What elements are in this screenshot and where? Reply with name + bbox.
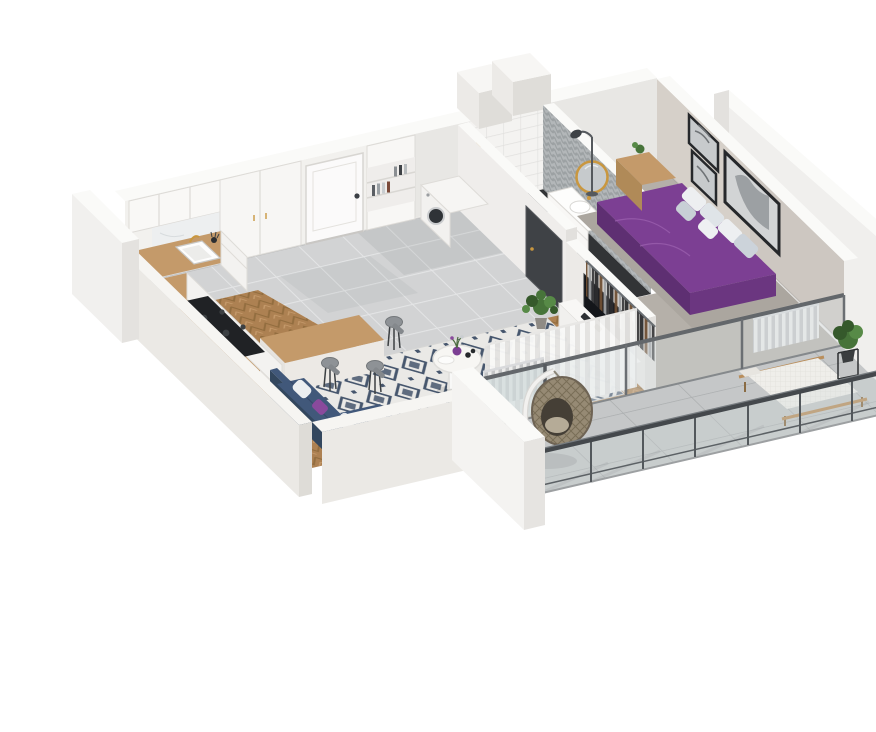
washer-knob — [426, 193, 429, 196]
scene — [72, 53, 876, 530]
table-tray — [438, 356, 454, 364]
divider-side — [524, 437, 545, 530]
west-wall-corner — [299, 422, 312, 497]
stub-side — [122, 239, 139, 343]
vase-flower-bud — [450, 336, 454, 340]
floorplan-svg: 3D isometric cutaway floor plan render o… — [40, 16, 876, 716]
burner — [219, 309, 224, 314]
egg-chair-cushion — [545, 417, 569, 433]
bookshelf-cabinet — [367, 135, 415, 230]
plant-pot — [535, 318, 547, 329]
plant-leaves — [526, 295, 538, 307]
entrance-door — [306, 153, 363, 244]
table-cup — [465, 352, 471, 358]
floorplan-render: 3D isometric cutaway floor plan render o… — [40, 16, 876, 716]
vanity-faucet — [587, 196, 591, 200]
bathroom-door-handle — [530, 247, 534, 251]
washer-door — [428, 208, 444, 224]
plant-leaves — [522, 305, 530, 313]
stand-plant — [842, 320, 854, 332]
table-cup — [471, 349, 476, 354]
burner — [223, 330, 230, 337]
vanity-sink — [570, 201, 590, 213]
plant-leaves — [550, 306, 558, 314]
vase-flower-bud — [460, 335, 464, 339]
door-handle — [354, 193, 359, 198]
nightstand-plant — [632, 142, 638, 148]
plant-leaves — [536, 290, 546, 300]
utensil-pot — [211, 237, 217, 243]
burner — [240, 324, 245, 329]
